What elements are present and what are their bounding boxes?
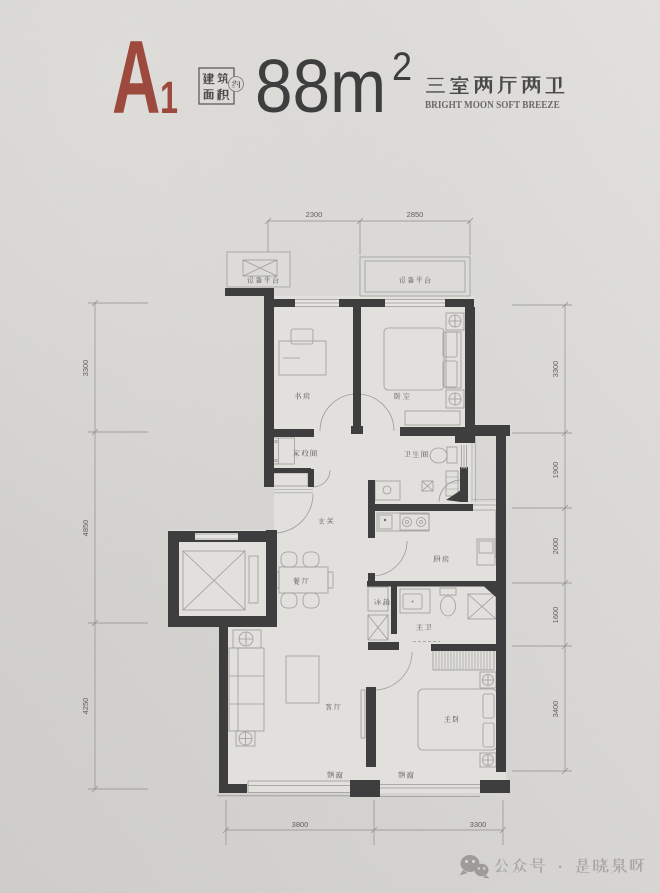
svg-text:A: A [112,19,160,135]
svg-text:88m: 88m [255,45,386,129]
svg-text:BRIGHT MOON SOFT BREEZE: BRIGHT MOON SOFT BREEZE [425,99,560,111]
svg-text:3300: 3300 [81,360,90,377]
svg-text:3300: 3300 [470,820,487,829]
svg-text:4250: 4250 [81,698,90,715]
svg-text:2: 2 [392,45,412,89]
svg-text:4850: 4850 [81,520,90,537]
svg-text:2850: 2850 [407,210,424,219]
svg-text:3300: 3300 [551,361,560,378]
svg-text:2300: 2300 [306,210,323,219]
svg-text:1900: 1900 [551,462,560,479]
svg-text:3800: 3800 [292,820,309,829]
svg-text:1: 1 [160,74,178,123]
svg-text:3400: 3400 [551,701,560,718]
svg-text:1600: 1600 [551,607,560,624]
svg-text:2000: 2000 [551,538,560,555]
